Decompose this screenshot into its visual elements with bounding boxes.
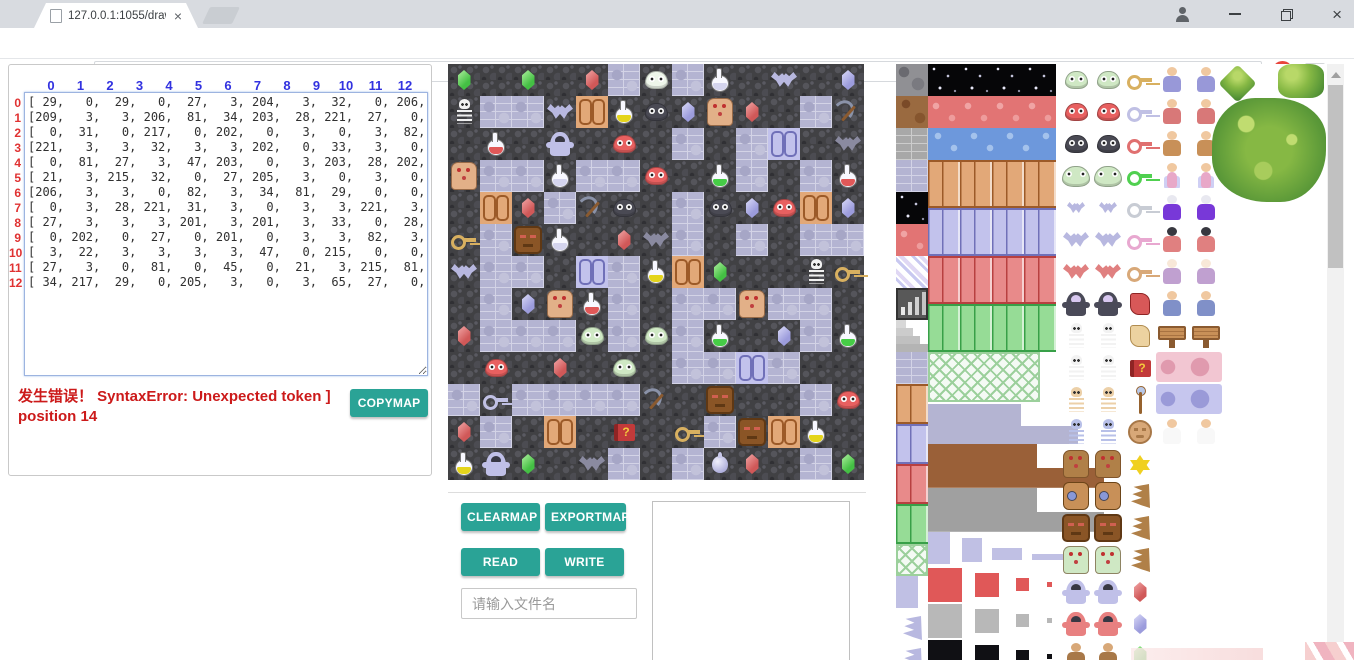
tileset-cell[interactable] (1156, 192, 1188, 224)
tileset-bush-diamond[interactable] (1218, 64, 1256, 102)
map-tile-red-flask[interactable] (832, 160, 864, 192)
map-tile-brick-path[interactable] (704, 416, 736, 448)
map-tile-red-slime[interactable] (832, 384, 864, 416)
map-tile-brick-path[interactable] (800, 288, 832, 320)
tileset-cell[interactable] (1124, 192, 1156, 224)
tileset-diag[interactable] (896, 256, 928, 288)
map-tile-purple-gem[interactable] (736, 192, 768, 224)
tileset-cell[interactable] (1190, 224, 1222, 256)
map-tile-purple-gem[interactable] (832, 64, 864, 96)
map-tile-purple-door[interactable] (736, 352, 768, 384)
map-tile-brick-path[interactable] (480, 160, 512, 192)
map-tile-dark-stone[interactable] (576, 416, 608, 448)
tileset-cell[interactable] (1156, 416, 1188, 448)
map-tile-dark-stone[interactable] (448, 192, 480, 224)
map-tile-yellow-flask[interactable] (800, 416, 832, 448)
map-tile-dark-stone[interactable] (640, 288, 672, 320)
map-tile-brick-path[interactable] (736, 224, 768, 256)
map-tile-stone-face[interactable] (704, 384, 736, 416)
map-tile-brick-path[interactable] (608, 256, 640, 288)
exportmap-button[interactable]: EXPORTMAP (545, 503, 626, 531)
map-tile-red-slime[interactable] (640, 160, 672, 192)
tileset-cell[interactable] (1060, 160, 1092, 192)
tileset-doors-tan[interactable] (896, 384, 928, 424)
map-tile-brick-path[interactable] (736, 128, 768, 160)
browser-tab[interactable]: 127.0.0.1:1055/drawMa × (34, 3, 198, 28)
tileset-wall-lav[interactable] (1156, 384, 1222, 414)
map-tile-dark-stone[interactable] (448, 128, 480, 160)
map-tile-red-gem[interactable] (736, 448, 768, 480)
map-tile-dark-stone[interactable] (832, 352, 864, 384)
map-tile-dark-stone[interactable] (640, 192, 672, 224)
tileset-cell[interactable] (1060, 416, 1092, 448)
tileset-star[interactable] (896, 192, 928, 224)
map-tile-brick-path[interactable] (608, 320, 640, 352)
map-tile-brick-path[interactable] (768, 288, 800, 320)
map-tile-dark-stone[interactable] (768, 224, 800, 256)
tileset-cell[interactable] (1060, 256, 1092, 288)
tileset-cell[interactable] (1060, 384, 1092, 416)
map-tile-gold-key[interactable] (448, 224, 480, 256)
map-tile-dark-stone[interactable] (640, 448, 672, 480)
map-tile-black-slime[interactable] (704, 192, 736, 224)
map-tile-dark-bat[interactable] (832, 128, 864, 160)
tileset-red[interactable] (896, 224, 928, 256)
map-tile-dark-stone[interactable] (512, 416, 544, 448)
tileset-cell[interactable] (1060, 608, 1092, 640)
map-tile-purple-door[interactable] (576, 256, 608, 288)
map-tile-pickaxe[interactable] (576, 192, 608, 224)
map-tile-red-gem[interactable] (544, 352, 576, 384)
map-tile-dark-bat[interactable] (640, 224, 672, 256)
map-tile-red-gem[interactable] (608, 224, 640, 256)
map-tile-stone-face[interactable] (736, 416, 768, 448)
tileset-cell[interactable] (1124, 384, 1156, 416)
map-tile-brick-path[interactable] (608, 288, 640, 320)
map-tile-clay-golem[interactable] (736, 288, 768, 320)
close-window-button[interactable]: × (1332, 6, 1342, 23)
map-tile-white-slime[interactable] (640, 64, 672, 96)
map-tile-purple-gem[interactable] (512, 288, 544, 320)
tileset-cell[interactable] (1190, 288, 1222, 320)
map-tile-dark-stone[interactable] (512, 352, 544, 384)
map-tile-brick-path[interactable] (512, 96, 544, 128)
map-tile-brick-path[interactable] (672, 224, 704, 256)
map-tile-dark-stone[interactable] (544, 64, 576, 96)
map-tile-dark-stone[interactable] (800, 64, 832, 96)
map-tile-brick-path[interactable] (576, 384, 608, 416)
map-tile-clay-golem[interactable] (448, 160, 480, 192)
tileset-cell[interactable] (896, 612, 928, 644)
tileset-cell[interactable] (1124, 448, 1156, 480)
tileset-squares-gray[interactable] (928, 604, 1078, 640)
tileset-cell[interactable] (1092, 384, 1124, 416)
map-tile-stone-face[interactable] (512, 224, 544, 256)
map-tile-green-gem[interactable] (832, 448, 864, 480)
map-tile-brick-path[interactable] (608, 448, 640, 480)
map-tile-brick-path[interactable] (480, 96, 512, 128)
map-tile-brick-path[interactable] (704, 288, 736, 320)
map-tile-dark-stone[interactable] (576, 352, 608, 384)
map-tile-clay-golem[interactable] (544, 288, 576, 320)
map-tile-green-gem[interactable] (512, 64, 544, 96)
tileset-cell[interactable] (1124, 256, 1156, 288)
tileset-squares-red[interactable] (928, 568, 1078, 604)
map-tile-red-slime[interactable] (480, 352, 512, 384)
tileset-cell[interactable] (1092, 192, 1124, 224)
error-message: 发生错误！ SyntaxError: Unexpected token ] po… (18, 387, 350, 427)
map-tile-brick-path[interactable] (608, 160, 640, 192)
map-tile-dark-stone[interactable] (800, 352, 832, 384)
map-tile-ghost[interactable] (480, 448, 512, 480)
tileset-cell[interactable] (1092, 416, 1124, 448)
tileset-cell[interactable] (1124, 352, 1156, 384)
tileset-cell[interactable] (1092, 352, 1124, 384)
map-canvas[interactable] (448, 64, 864, 480)
tileset-bars[interactable] (896, 288, 928, 320)
tileset-lattice[interactable] (896, 544, 928, 576)
tileset-cell[interactable] (1124, 224, 1156, 256)
map-tile-dark-stone[interactable] (576, 224, 608, 256)
tileset-cell[interactable] (1124, 416, 1156, 448)
tileset-cell[interactable] (1060, 480, 1092, 512)
tileset-red[interactable] (928, 96, 1056, 128)
map-tile-green-flask[interactable] (704, 160, 736, 192)
map-tile-dark-stone[interactable] (736, 64, 768, 96)
map-tile-dark-stone[interactable] (704, 224, 736, 256)
map-tile-yellow-flask[interactable] (608, 96, 640, 128)
tileset-doors-green[interactable] (928, 304, 1056, 352)
tileset-cell[interactable] (1124, 544, 1156, 576)
map-tile-purple-door[interactable] (768, 128, 800, 160)
map-tile-yellow-flask[interactable] (640, 256, 672, 288)
tileset-cobble[interactable] (896, 160, 928, 192)
tileset-water[interactable] (928, 128, 1056, 160)
map-tile-green-slime[interactable] (576, 320, 608, 352)
map-tile-red-flask[interactable] (480, 128, 512, 160)
map-tile-gold-key[interactable] (672, 416, 704, 448)
map-tile-dark-stone[interactable] (544, 256, 576, 288)
tileset-cell[interactable] (1156, 160, 1188, 192)
map-tile-brick-path[interactable] (448, 384, 480, 416)
map-tile-dark-stone[interactable] (640, 128, 672, 160)
map-tile-skeleton[interactable] (448, 96, 480, 128)
map-tile-red-gem[interactable] (448, 416, 480, 448)
tileset-cell[interactable] (1060, 192, 1092, 224)
map-tile-ghost[interactable] (544, 128, 576, 160)
copymap-button[interactable]: COPYMAP (350, 389, 428, 417)
map-tile-tan-door[interactable] (480, 192, 512, 224)
map-tile-brick-path[interactable] (672, 192, 704, 224)
map-tile-brick-path[interactable] (480, 288, 512, 320)
map-tile-dark-stone[interactable] (704, 128, 736, 160)
map-tile-purple-orb[interactable] (704, 448, 736, 480)
map-tile-silver-key[interactable] (480, 384, 512, 416)
tileset-cell[interactable] (1092, 512, 1124, 544)
tileset-cell[interactable] (1060, 128, 1092, 160)
map-tile-yellow-flask[interactable] (448, 448, 480, 480)
tileset-cell[interactable] (1092, 128, 1124, 160)
tileset-cell[interactable] (1092, 288, 1124, 320)
tileset-canopy[interactable] (1212, 98, 1326, 202)
map-tile-brick-path[interactable] (672, 320, 704, 352)
tileset-cell[interactable] (1124, 288, 1156, 320)
map-tile-brick-path[interactable] (800, 448, 832, 480)
tileset-palette[interactable] (896, 64, 1330, 660)
tileset-pillars[interactable] (896, 576, 928, 612)
tab-close-icon[interactable]: × (174, 9, 182, 23)
map-tile-brick-path[interactable] (608, 384, 640, 416)
tileset-cell[interactable] (1092, 640, 1124, 660)
scrollbar-up-icon[interactable] (1331, 72, 1341, 78)
map-tile-question-book[interactable] (608, 416, 640, 448)
tileset-cell[interactable] (1124, 480, 1156, 512)
map-tile-pale-flask[interactable] (544, 160, 576, 192)
tileset-cobble[interactable] (896, 352, 928, 384)
tileset-cell[interactable] (1156, 224, 1188, 256)
map-tile-tan-door[interactable] (544, 416, 576, 448)
minimize-button[interactable] (1229, 13, 1241, 15)
map-tile-clay-golem[interactable] (704, 96, 736, 128)
tileset-cell[interactable] (1092, 576, 1124, 608)
map-tile-purple-gem[interactable] (672, 96, 704, 128)
tileset-cell[interactable] (1092, 544, 1124, 576)
tileset-cell[interactable] (1060, 288, 1092, 320)
map-tile-dark-stone[interactable] (832, 416, 864, 448)
tileset-cell[interactable] (1060, 544, 1092, 576)
tileset-cell[interactable] (1060, 448, 1092, 480)
map-tile-brick-path[interactable] (544, 384, 576, 416)
tileset-brickgray[interactable] (896, 128, 928, 160)
map-tile-black-slime[interactable] (640, 96, 672, 128)
tileset-cell[interactable] (1060, 576, 1092, 608)
tileset-cell[interactable] (1060, 640, 1092, 660)
map-tile-dark-stone[interactable] (736, 256, 768, 288)
map-tile-brick-path[interactable] (480, 256, 512, 288)
map-tile-dark-stone[interactable] (480, 64, 512, 96)
map-tile-dark-stone[interactable] (640, 416, 672, 448)
map-tile-dark-stone[interactable] (800, 128, 832, 160)
map-tile-brick-path[interactable] (544, 192, 576, 224)
tileset-wall-pink[interactable] (1156, 352, 1222, 382)
tileset-doors-green[interactable] (896, 504, 928, 544)
map-tile-brick-path[interactable] (800, 96, 832, 128)
tileset-cell[interactable] (1060, 352, 1092, 384)
tileset-cell[interactable] (1060, 224, 1092, 256)
tileset-cell[interactable] (1092, 160, 1124, 192)
map-tile-tan-door[interactable] (800, 192, 832, 224)
map-tile-purple-gem[interactable] (768, 320, 800, 352)
map-tile-tan-door[interactable] (768, 416, 800, 448)
tileset-cell[interactable] (1190, 64, 1222, 96)
map-tile-brick-path[interactable] (480, 224, 512, 256)
tileset-cell[interactable] (1092, 480, 1124, 512)
map-tile-green-slime[interactable] (640, 320, 672, 352)
tileset-cell[interactable] (1124, 160, 1156, 192)
map-tile-green-flask[interactable] (704, 320, 736, 352)
tileset-bush[interactable] (1278, 64, 1324, 98)
matrix-col-header-12: 12 (398, 78, 412, 93)
tileset-cell[interactable] (1092, 608, 1124, 640)
map-tile-brick-path[interactable] (672, 128, 704, 160)
page-scrollbar[interactable] (1327, 64, 1344, 660)
tileset-cell[interactable] (1190, 192, 1222, 224)
map-tile-tan-door[interactable] (672, 256, 704, 288)
map-tile-brick-path[interactable] (672, 352, 704, 384)
map-tile-dark-stone[interactable] (672, 384, 704, 416)
write-button[interactable]: WRITE (545, 548, 624, 576)
map-tile-tan-door[interactable] (576, 96, 608, 128)
map-tile-brick-path[interactable] (800, 160, 832, 192)
map-tile-dark-stone[interactable] (448, 288, 480, 320)
tileset-lattice[interactable] (928, 352, 1040, 402)
tileset-doors-red[interactable] (896, 464, 928, 504)
map-tile-brick-path[interactable] (736, 160, 768, 192)
map-tile-green-slime[interactable] (608, 352, 640, 384)
tileset-star[interactable] (928, 64, 1056, 96)
tileset-cell[interactable] (1060, 96, 1092, 128)
map-tile-black-slime[interactable] (608, 192, 640, 224)
tileset-cell[interactable] (1190, 320, 1222, 352)
map-tile-red-gem[interactable] (576, 64, 608, 96)
map-tile-pickaxe[interactable] (640, 384, 672, 416)
tileset-cell[interactable] (1092, 320, 1124, 352)
tileset-cell[interactable] (1060, 64, 1092, 96)
map-tile-purple-gem[interactable] (832, 192, 864, 224)
tileset-cell[interactable] (1124, 128, 1156, 160)
tileset-cell[interactable] (1092, 96, 1124, 128)
tileset-cell[interactable] (1092, 64, 1124, 96)
tileset-cell[interactable] (1156, 64, 1188, 96)
map-tile-dark-stone[interactable] (576, 128, 608, 160)
tileset-doors-lav[interactable] (928, 208, 1056, 256)
tileset-cell[interactable] (1124, 576, 1156, 608)
map-tile-brick-path[interactable] (672, 64, 704, 96)
restore-button[interactable] (1281, 9, 1292, 20)
clearmap-button[interactable]: CLEARMAP (461, 503, 540, 531)
tileset-cell[interactable] (1124, 64, 1156, 96)
map-tile-red-gem[interactable] (448, 320, 480, 352)
tileset-dirt[interactable] (896, 96, 928, 128)
map-tile-dark-stone[interactable] (736, 384, 768, 416)
map-tile-brick-path[interactable] (576, 160, 608, 192)
tileset-squares-black[interactable] (928, 640, 1078, 660)
profile-icon[interactable] (1174, 6, 1191, 23)
map-tile-dark-stone[interactable] (768, 448, 800, 480)
tileset-doors-lav[interactable] (896, 424, 928, 464)
map-tile-purple-bat[interactable] (768, 64, 800, 96)
map-tile-pickaxe[interactable] (832, 96, 864, 128)
map-tile-brick-path[interactable] (800, 320, 832, 352)
read-button[interactable]: READ (461, 548, 540, 576)
tileset-cell[interactable] (1092, 256, 1124, 288)
map-tile-brick-path[interactable] (672, 288, 704, 320)
tileset-cell[interactable] (1124, 512, 1156, 544)
tileset-doors-tan[interactable] (928, 160, 1056, 208)
tileset-rock[interactable] (896, 64, 928, 96)
map-tile-dark-stone[interactable] (448, 352, 480, 384)
map-tile-dark-stone[interactable] (768, 384, 800, 416)
map-tile-brick-path[interactable] (704, 352, 736, 384)
map-tile-brick-path[interactable] (800, 384, 832, 416)
tileset-cell[interactable] (1156, 288, 1188, 320)
map-tile-brick-path[interactable] (672, 448, 704, 480)
map-tile-brick-path[interactable] (480, 416, 512, 448)
tileset-cell[interactable] (896, 644, 928, 660)
map-tile-brick-path[interactable] (512, 256, 544, 288)
map-tile-dark-stone[interactable] (736, 320, 768, 352)
tileset-doors-red[interactable] (928, 256, 1056, 304)
new-tab-button[interactable] (202, 7, 240, 24)
map-tile-dark-stone[interactable] (544, 448, 576, 480)
map-tile-red-gem[interactable] (512, 192, 544, 224)
tileset-ledge-cobble[interactable] (928, 404, 1078, 444)
map-tile-dark-stone[interactable] (512, 128, 544, 160)
map-tile-brick-path[interactable] (832, 224, 864, 256)
map-tile-green-gem[interactable] (512, 448, 544, 480)
map-tile-dark-stone[interactable] (768, 96, 800, 128)
map-tile-brick-path[interactable] (480, 320, 512, 352)
tileset-cell[interactable] (1124, 320, 1156, 352)
map-tile-skeleton[interactable] (800, 256, 832, 288)
tileset-stairs[interactable] (896, 320, 928, 352)
map-tile-brick-path[interactable] (544, 320, 576, 352)
map-tile-green-gem[interactable] (704, 256, 736, 288)
map-tile-red-slime[interactable] (768, 192, 800, 224)
tileset-pillars[interactable] (928, 532, 1078, 568)
map-tile-dark-stone[interactable] (768, 256, 800, 288)
map-tile-pale-flask[interactable] (544, 224, 576, 256)
tileset-cell[interactable] (1156, 96, 1188, 128)
tileset-cell[interactable] (1092, 224, 1124, 256)
tileset-cell[interactable] (1156, 256, 1188, 288)
tileset-cell[interactable] (1190, 416, 1222, 448)
tileset-cell[interactable] (1190, 256, 1222, 288)
filename-input[interactable] (461, 588, 637, 619)
tileset-cell[interactable] (1060, 512, 1092, 544)
map-tile-purple-bat[interactable] (544, 96, 576, 128)
map-tile-green-gem[interactable] (448, 64, 480, 96)
map-tile-red-slime[interactable] (608, 128, 640, 160)
scrollbar-thumb[interactable] (1328, 85, 1343, 268)
map-tile-dark-stone[interactable] (768, 160, 800, 192)
tileset-cell[interactable] (1156, 128, 1188, 160)
map-tile-dark-stone[interactable] (640, 352, 672, 384)
map-matrix-textarea[interactable] (24, 92, 428, 376)
map-tile-red-gem[interactable] (736, 96, 768, 128)
map-tile-brick-path[interactable] (800, 224, 832, 256)
map-tile-brick-path[interactable] (512, 384, 544, 416)
tileset-cell[interactable] (1124, 608, 1156, 640)
tileset-cell[interactable] (1092, 448, 1124, 480)
map-tile-green-flask[interactable] (832, 320, 864, 352)
map-tile-dark-bat[interactable] (576, 448, 608, 480)
char-wizard-purple-icon (1162, 195, 1182, 221)
map-tile-brick-path[interactable] (512, 160, 544, 192)
map-tile-purple-bat[interactable] (448, 256, 480, 288)
map-tile-dark-stone[interactable] (832, 288, 864, 320)
tileset-cell[interactable] (1156, 320, 1188, 352)
map-tile-red-flask[interactable] (576, 288, 608, 320)
map-tile-pale-flask[interactable] (704, 64, 736, 96)
map-tile-brick-path[interactable] (512, 320, 544, 352)
tileset-cell[interactable] (1124, 96, 1156, 128)
map-tile-brick-path[interactable] (768, 352, 800, 384)
map-tile-gold-key[interactable] (832, 256, 864, 288)
tileset-cell[interactable] (1060, 320, 1092, 352)
map-tile-brick-path[interactable] (608, 64, 640, 96)
map-tile-dark-stone[interactable] (672, 160, 704, 192)
